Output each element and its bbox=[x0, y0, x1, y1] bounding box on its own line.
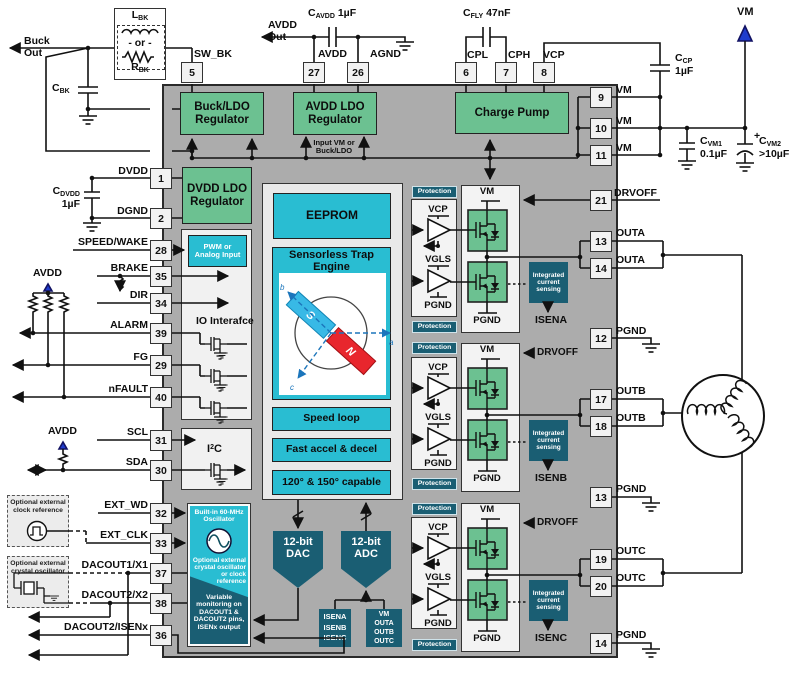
pin-label-dir: DIR bbox=[28, 290, 148, 302]
pin-40: 40 bbox=[150, 387, 172, 408]
ics-text: Integrated current sensing bbox=[532, 590, 566, 612]
protection-label: Protection bbox=[412, 503, 457, 515]
pin-number: 10 bbox=[595, 123, 607, 135]
pin-36: 36 bbox=[150, 625, 172, 646]
pin-2: 2 bbox=[150, 208, 172, 229]
pin-label-ext-clk: EXT_CLK bbox=[28, 530, 148, 542]
pin-number: 26 bbox=[352, 67, 364, 79]
pin-27: 27 bbox=[303, 62, 325, 83]
outb-input: OUTB bbox=[374, 628, 394, 637]
pin-9: 9 bbox=[590, 87, 612, 108]
pin-14-outa: 14 bbox=[590, 258, 612, 279]
pin-label-outa2: OUTA bbox=[616, 255, 645, 267]
pin-30: 30 bbox=[150, 460, 172, 481]
protection-text: Protection bbox=[418, 344, 452, 352]
pin-label-sw-bk: SW_BK bbox=[194, 49, 232, 61]
fast-accel-block: Fast accel & decel bbox=[272, 438, 391, 462]
pin-label-dacout2-isenx: DACOUT2/ISENx bbox=[28, 622, 148, 634]
vm-input: VM bbox=[379, 610, 390, 619]
pin-label-sda: SDA bbox=[28, 457, 148, 469]
net-pgnd: PGND bbox=[472, 633, 502, 644]
pin-label-ext-wd: EXT_WD bbox=[28, 500, 148, 512]
pin-number: 30 bbox=[155, 465, 167, 477]
pin-label-alarm: ALARM bbox=[28, 320, 148, 332]
avdd-arrow-icon bbox=[59, 442, 67, 449]
pin-label-avdd: AVDD bbox=[318, 49, 347, 61]
pin-label-cpl: CPL bbox=[467, 50, 488, 62]
pin-label-cph: CPH bbox=[508, 50, 530, 62]
adc-label: 12-bit ADC bbox=[348, 531, 384, 561]
pwm-label: PWM or Analog Input bbox=[192, 243, 244, 260]
avdd-out-label: AVDDOut bbox=[268, 20, 297, 43]
pin-label-outa1: OUTA bbox=[616, 228, 645, 240]
pin-number: 14 bbox=[595, 638, 607, 650]
or-label: - or - bbox=[114, 38, 166, 50]
pin-label-agnd: AGND bbox=[370, 49, 401, 61]
pin-1: 1 bbox=[150, 168, 172, 189]
buck-ldo-label: Buck/LDO Regulator bbox=[181, 101, 263, 127]
capable-block: 120° & 150° capable bbox=[272, 470, 391, 495]
net-pgnd: PGND bbox=[472, 315, 502, 326]
pin-number: 29 bbox=[155, 360, 167, 372]
pin-number: 32 bbox=[155, 508, 167, 520]
pin-label-dacout2-x2: DACOUT2/X2 bbox=[28, 590, 148, 602]
ics-text: Integrated current sensing bbox=[532, 272, 566, 294]
pin-7: 7 bbox=[495, 62, 517, 83]
pin-label-vcp: VCP bbox=[543, 50, 565, 62]
pin-number: 20 bbox=[595, 581, 607, 593]
protection-text: Protection bbox=[418, 480, 452, 488]
pin-number: 1 bbox=[158, 173, 164, 185]
trap-engine-label: Sensorless Trap Engine bbox=[273, 250, 390, 273]
oscillator-bottom-text: Variable monitoring on DACOUT1 & DACOUT2… bbox=[192, 594, 246, 631]
pin-number: 38 bbox=[155, 598, 167, 610]
pin-label-dvdd: DVDD bbox=[28, 166, 148, 178]
avdd-pullup-label: AVDD bbox=[33, 268, 62, 280]
pin-32: 32 bbox=[150, 503, 172, 524]
dvdd-ldo-regulator-block: DVDD LDO Regulator bbox=[182, 167, 252, 224]
fast-accel-label: Fast accel & decel bbox=[286, 444, 377, 456]
pin-number: 34 bbox=[155, 298, 167, 310]
speed-loop-block: Speed loop bbox=[272, 407, 391, 431]
i2c-panel bbox=[181, 428, 252, 490]
vm-supply-arrow-icon bbox=[738, 26, 752, 41]
rbk-label: RBK bbox=[114, 62, 166, 75]
dac-label: 12-bit DAC bbox=[280, 531, 316, 561]
pin-label-vm9: VM bbox=[616, 85, 632, 97]
pwm-analog-input-block: PWM or Analog Input bbox=[188, 235, 247, 267]
pin-17: 17 bbox=[590, 389, 612, 410]
isenb-label: ISENB bbox=[531, 473, 571, 485]
protection-text: Protection bbox=[418, 323, 452, 331]
pin-label-vm10: VM bbox=[616, 116, 632, 128]
pin-label-speed-wake: SPEED/WAKE bbox=[28, 237, 148, 249]
pin-number: 27 bbox=[308, 67, 320, 79]
cbk-label: CBK bbox=[52, 83, 70, 96]
current-sense-block-b: Integrated current sensing bbox=[529, 420, 568, 461]
pin-number: 21 bbox=[595, 195, 607, 207]
protection-label: Protection bbox=[412, 639, 457, 651]
bridge-panel-c bbox=[461, 503, 520, 652]
buck-ldo-regulator-block: Buck/LDO Regulator bbox=[180, 92, 264, 135]
cavdd-label: CAVDD 1µF bbox=[308, 8, 356, 21]
current-sense-block-c: Integrated current sensing bbox=[529, 580, 568, 621]
net-vcp: VCP bbox=[423, 522, 453, 533]
protection-label: Protection bbox=[412, 478, 457, 490]
net-pgnd: PGND bbox=[423, 458, 453, 469]
pin-5: 5 bbox=[181, 62, 203, 83]
outc-input: OUTC bbox=[374, 637, 394, 646]
net-vgls: VGLS bbox=[423, 254, 453, 265]
pin-18: 18 bbox=[590, 416, 612, 437]
pin-label-dgnd: DGND bbox=[28, 206, 148, 218]
pin-29: 29 bbox=[150, 355, 172, 376]
pin-label-nfault: nFAULT bbox=[28, 384, 148, 396]
pin-label-outc1: OUTC bbox=[616, 546, 646, 558]
pin-20: 20 bbox=[590, 576, 612, 597]
pin-31: 31 bbox=[150, 430, 172, 451]
oscillator-title: Built-in 60-MHz Oscillator bbox=[191, 509, 247, 524]
pin-34: 34 bbox=[150, 293, 172, 314]
pin-21: 21 bbox=[590, 190, 612, 211]
protection-label: Protection bbox=[412, 342, 457, 354]
pin-37: 37 bbox=[150, 563, 172, 584]
pin-number: 6 bbox=[463, 67, 469, 79]
input-vm-note: Input VM or Buck/LDO bbox=[306, 139, 362, 156]
ics-text: Integrated current sensing bbox=[532, 430, 566, 452]
pin-number: 19 bbox=[595, 554, 607, 566]
isen-b-input: ISENB bbox=[324, 623, 347, 634]
pin-26: 26 bbox=[347, 62, 369, 83]
block-diagram: Optional external clock reference Option… bbox=[0, 0, 800, 674]
cfly-label: CFLY 47nF bbox=[463, 8, 511, 21]
pin-number: 7 bbox=[503, 67, 509, 79]
pin-8: 8 bbox=[533, 62, 555, 83]
protection-text: Protection bbox=[418, 188, 452, 196]
pin-number: 17 bbox=[595, 394, 607, 406]
motor-coil-icon bbox=[688, 405, 725, 414]
pin-number: 13 bbox=[595, 236, 607, 248]
pin-10: 10 bbox=[590, 118, 612, 139]
bridge-panel-b bbox=[461, 343, 520, 492]
pin-6: 6 bbox=[455, 62, 477, 83]
net-pgnd: PGND bbox=[423, 300, 453, 311]
net-pgnd: PGND bbox=[423, 618, 453, 629]
avdd-ldo-regulator-block: AVDD LDO Regulator bbox=[293, 92, 377, 135]
pin-label-vm11: VM bbox=[616, 143, 632, 155]
eeprom-block: EEPROM bbox=[273, 193, 391, 239]
motor-coil-icon bbox=[719, 378, 747, 414]
pin-number: 2 bbox=[158, 213, 164, 225]
pin-label-pgnd12: PGND bbox=[616, 326, 646, 338]
pin-13-outa: 13 bbox=[590, 231, 612, 252]
drvoff-net-label-c: DRVOFF bbox=[537, 517, 578, 528]
rotor-image-area bbox=[279, 273, 386, 395]
pin-19: 19 bbox=[590, 549, 612, 570]
isen-c-input: ISENC bbox=[324, 633, 347, 644]
pin-label-outb2: OUTB bbox=[616, 413, 646, 425]
pin-label-pgnd13: PGND bbox=[616, 484, 646, 496]
avdd-ldo-label: AVDD LDO Regulator bbox=[294, 101, 376, 127]
protection-text: Protection bbox=[418, 505, 452, 513]
net-vcp: VCP bbox=[423, 204, 453, 215]
protection-text: Protection bbox=[418, 641, 452, 649]
pin-label-drvoff: DRVOFF bbox=[614, 188, 657, 200]
net-vm: VM bbox=[472, 186, 502, 197]
pin-number: 9 bbox=[598, 92, 604, 104]
pullup-resistor-icon bbox=[60, 293, 68, 397]
charge-pump-label: Charge Pump bbox=[475, 107, 550, 120]
motor-coil-icon bbox=[728, 412, 756, 448]
capable-label: 120° & 150° capable bbox=[282, 477, 381, 489]
current-sense-block-a: Integrated current sensing bbox=[529, 262, 568, 303]
lbk-label: LBK bbox=[114, 10, 166, 23]
pin-label-fg: FG bbox=[28, 352, 148, 364]
pin-number: 37 bbox=[155, 568, 167, 580]
eeprom-label: EEPROM bbox=[306, 209, 358, 222]
pin-14-pgnd: 14 bbox=[590, 633, 612, 654]
pin-12: 12 bbox=[590, 328, 612, 349]
bridge-panel-a bbox=[461, 185, 520, 333]
cvm2-label: CVM2>10µF bbox=[759, 136, 789, 160]
vm-supply-label: VM bbox=[737, 6, 754, 18]
pin-number: 11 bbox=[595, 150, 606, 162]
cvm1-label: CVM10.1µF bbox=[700, 136, 727, 160]
ccp-label: CCP1µF bbox=[675, 53, 693, 77]
vm-inputs-block: VM OUTA OUTB OUTC bbox=[366, 609, 402, 647]
pin-label-pgnd14: PGND bbox=[616, 630, 646, 642]
isen-inputs-block: ISENA ISENB ISENC bbox=[319, 609, 351, 647]
isen-a-input: ISENA bbox=[324, 612, 347, 623]
oscillator-mid-text: Optional external crystal oscillator or … bbox=[191, 557, 246, 586]
i2c-label: I2C bbox=[207, 443, 222, 455]
pin-39: 39 bbox=[150, 323, 172, 344]
net-vm: VM bbox=[472, 504, 502, 515]
speed-loop-label: Speed loop bbox=[303, 413, 360, 425]
pin-33: 33 bbox=[150, 533, 172, 554]
pin-number: 39 bbox=[155, 328, 167, 340]
pin-label-scl: SCL bbox=[28, 427, 148, 439]
protection-label: Protection bbox=[412, 321, 457, 333]
pin-number: 13 bbox=[595, 492, 607, 504]
pin-label-outc2: OUTC bbox=[616, 573, 646, 585]
isena-label: ISENA bbox=[531, 315, 571, 327]
pin-number: 35 bbox=[155, 271, 167, 283]
pin-11: 11 bbox=[590, 145, 612, 166]
charge-pump-block: Charge Pump bbox=[455, 92, 569, 134]
pin-label-outb1: OUTB bbox=[616, 386, 646, 398]
isenc-label: ISENC bbox=[531, 633, 571, 645]
pin-number: 36 bbox=[155, 630, 167, 642]
pin-label-dacout1-x1: DACOUT1/X1 bbox=[28, 560, 148, 572]
io-interface-label: IO Interafce bbox=[196, 316, 254, 328]
motor-icon bbox=[682, 375, 764, 457]
net-vgls: VGLS bbox=[423, 572, 453, 583]
pin-13-pgnd: 13 bbox=[590, 487, 612, 508]
pin-number: 12 bbox=[595, 333, 607, 345]
pin-38: 38 bbox=[150, 593, 172, 614]
pin-35: 35 bbox=[150, 266, 172, 287]
pin-28: 28 bbox=[150, 240, 172, 261]
pin-number: 31 bbox=[155, 435, 167, 447]
buck-out-label: BuckOut bbox=[24, 36, 50, 59]
net-vcp: VCP bbox=[423, 362, 453, 373]
pin-number: 5 bbox=[189, 67, 195, 79]
dvdd-ldo-label: DVDD LDO Regulator bbox=[183, 183, 251, 209]
avdd-sda-label: AVDD bbox=[48, 426, 77, 438]
drvoff-net-label-b: DRVOFF bbox=[537, 347, 578, 358]
outa-input: OUTA bbox=[374, 619, 393, 628]
pin-number: 33 bbox=[155, 538, 167, 550]
pin-number: 28 bbox=[155, 245, 167, 257]
trap-engine-block: Sensorless Trap Engine bbox=[272, 247, 391, 400]
pin-number: 14 bbox=[595, 263, 607, 275]
pin-number: 8 bbox=[541, 67, 547, 79]
pin-number: 18 bbox=[595, 421, 607, 433]
net-vm: VM bbox=[472, 344, 502, 355]
protection-label: Protection bbox=[412, 186, 457, 198]
net-vgls: VGLS bbox=[423, 412, 453, 423]
pin-number: 40 bbox=[155, 392, 167, 404]
net-pgnd: PGND bbox=[472, 473, 502, 484]
